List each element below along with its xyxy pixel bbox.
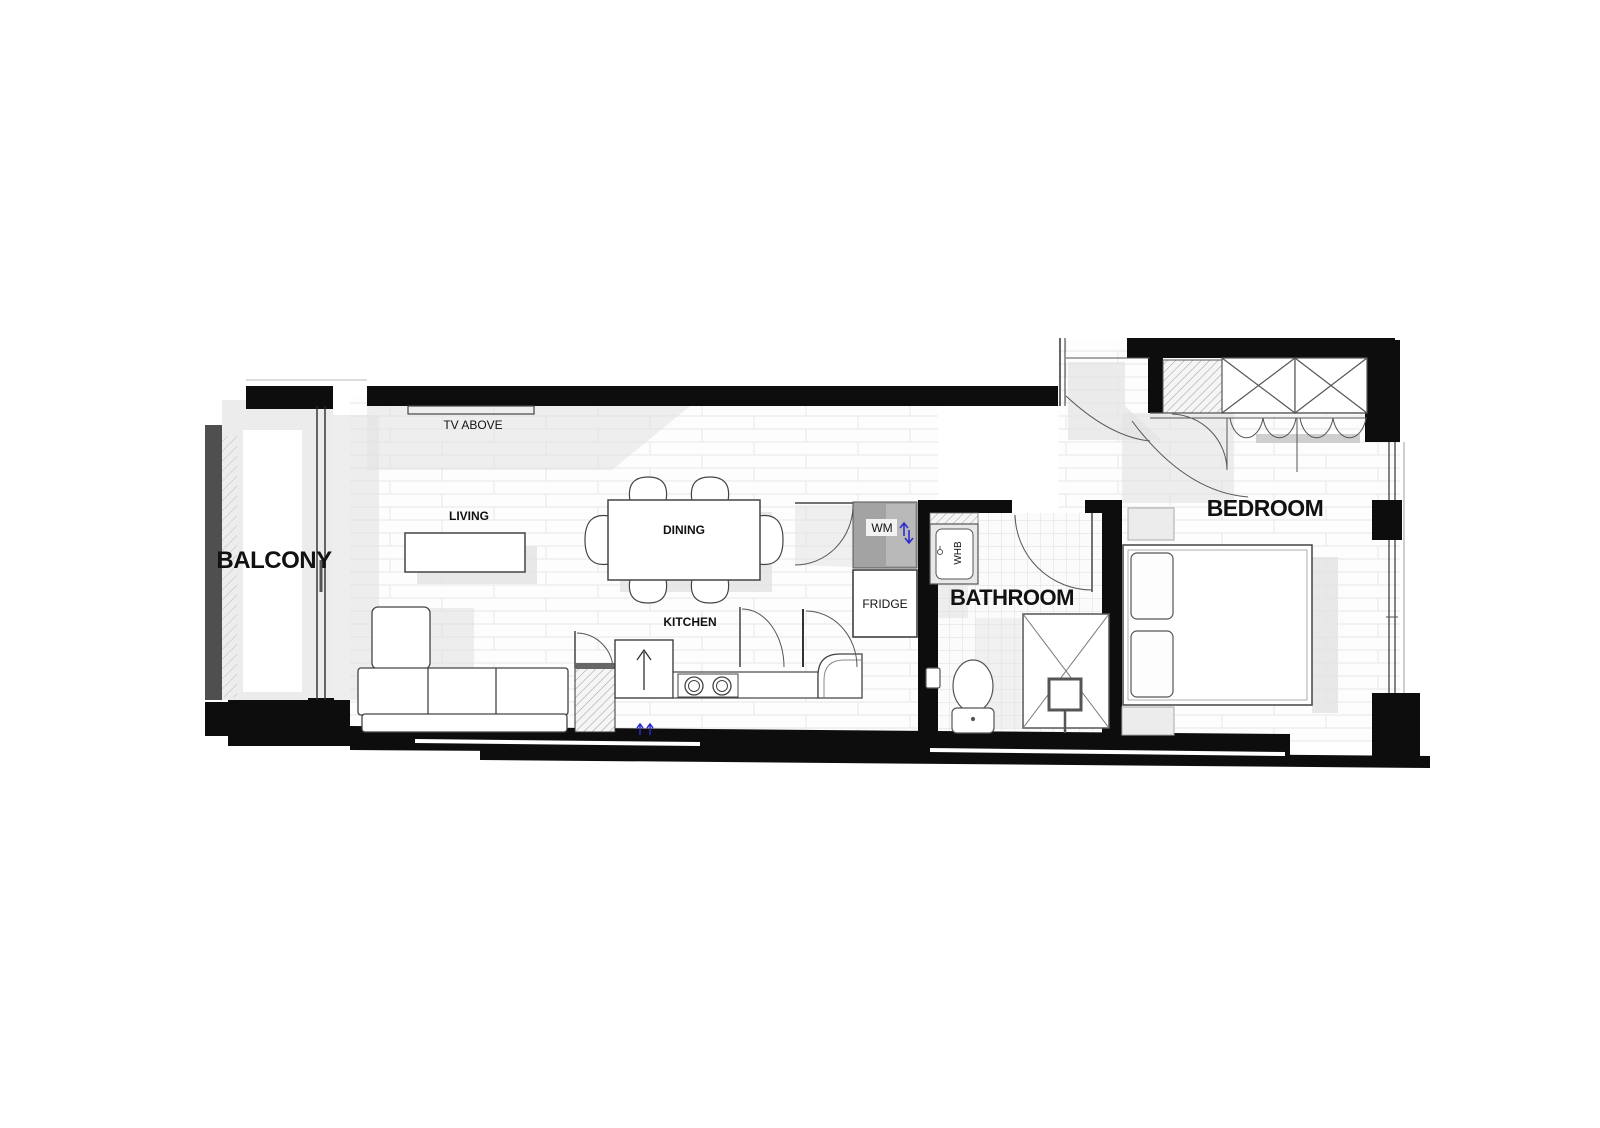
- wardrobe-hatched-unit: [1163, 360, 1222, 413]
- sofa-front: [362, 714, 567, 732]
- pillow-2: [1131, 631, 1173, 697]
- wash-hand-basin: WHB: [930, 513, 978, 584]
- whb-label: WHB: [953, 541, 964, 565]
- toilet-dot: [972, 718, 975, 721]
- flush-panel: [926, 668, 940, 688]
- chair-right: [759, 516, 783, 565]
- wall-top-main: [367, 386, 1058, 406]
- chair-top-1: [629, 477, 666, 501]
- fridge: FRIDGE: [853, 570, 917, 637]
- bed-shadow: [1312, 557, 1338, 713]
- sofa-chaise: [372, 607, 430, 669]
- chair-left: [585, 516, 609, 565]
- kitchen-label: KITCHEN: [663, 615, 716, 629]
- chair-bottom-1: [629, 579, 666, 603]
- pillow-1: [1131, 553, 1173, 619]
- wall-window-pier: [1372, 500, 1402, 540]
- chair-bottom-2: [691, 579, 728, 603]
- double-bed: [1123, 545, 1312, 705]
- wall-balcony-top: [246, 386, 333, 409]
- wall-right-bottom-corner: [1372, 693, 1420, 763]
- wall-balcony-left-cap: [205, 702, 228, 736]
- washing-machine: WM: [853, 502, 917, 568]
- balcony-label: BALCONY: [216, 547, 332, 574]
- bedroom-window: [1386, 442, 1404, 693]
- shower: [1023, 614, 1109, 733]
- wardrobe-x-units: [1222, 358, 1367, 413]
- floor-plan-page: WM FRIDGE WHB: [0, 0, 1600, 1128]
- fridge-label: FRIDGE: [862, 597, 907, 611]
- wall-bathroom-top: [938, 500, 1012, 513]
- stove: [678, 674, 738, 697]
- kitchen-column-cap: [575, 663, 615, 669]
- wall-entry-top: [1127, 338, 1395, 358]
- bathroom-label: BATHROOM: [950, 585, 1074, 610]
- floor-plan: WM FRIDGE WHB: [0, 0, 1600, 1128]
- wall-bathroom-top-right: [1085, 500, 1122, 513]
- chaise-shadow: [430, 608, 474, 670]
- shower-mixer: [1049, 679, 1081, 710]
- chair-top-2: [691, 477, 728, 501]
- bedroom-label: BEDROOM: [1207, 495, 1324, 521]
- bedroom-corner-shadow: [1122, 413, 1234, 503]
- dining-table: [608, 500, 760, 580]
- wall-wardrobe-left-stub: [1148, 358, 1163, 413]
- dining-label: DINING: [663, 523, 705, 537]
- glass-door-foot: [308, 698, 334, 714]
- tv-above-label: TV ABOVE: [443, 418, 502, 432]
- bedside-table-bottom: [1122, 707, 1174, 735]
- wall-right-top-corner: [1365, 340, 1400, 442]
- bedside-table-top: [1128, 508, 1174, 540]
- sofa-seats: [358, 668, 568, 715]
- kitchen-column-hatched: [575, 668, 615, 732]
- wm-label: WM: [871, 521, 892, 535]
- living-label: LIVING: [449, 509, 489, 523]
- coffee-table: [405, 533, 525, 572]
- toilet-bowl: [953, 660, 993, 712]
